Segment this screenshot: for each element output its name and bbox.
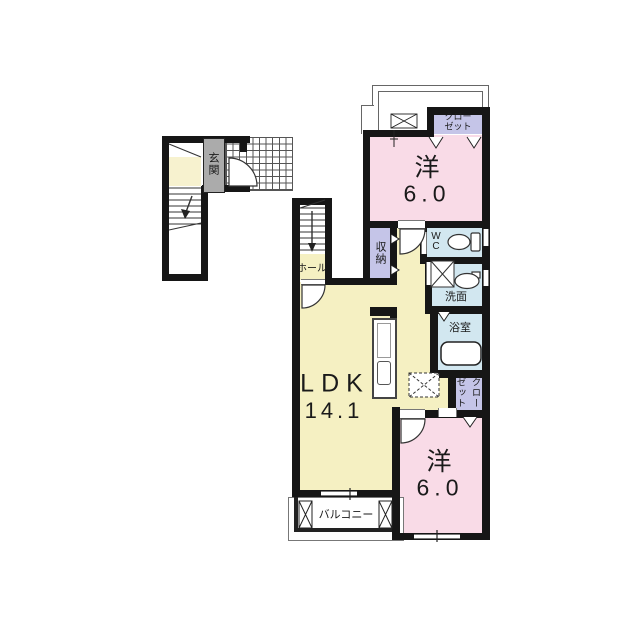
balcony-hatch-left-icon: [299, 501, 312, 528]
refrigerator-space-icon: [409, 373, 439, 397]
plan-symbols: [0, 0, 640, 640]
closet-top-line2: ゼット: [444, 122, 471, 132]
hall-label: ホール: [297, 260, 327, 275]
closet-bottom-line1: クロー: [468, 377, 482, 409]
storage-label: 収納: [372, 241, 388, 265]
sink-icon: [455, 272, 480, 289]
washing-machine-icon: [431, 261, 454, 287]
washroom-label: 洗面: [445, 288, 467, 304]
floor-plan: 洋 6.0 洋 6.0 LDK 14.1 バルコニー ホール 玄関 収納 W C…: [0, 0, 640, 640]
bedroom-bottom-size: 6.0: [417, 475, 464, 502]
bathtub-icon: [441, 342, 481, 365]
entrance-label: 玄関: [205, 152, 221, 176]
balcony-label: バルコニー: [319, 506, 374, 522]
bathroom-label: 浴室: [449, 319, 471, 335]
wc-label-line2: C: [431, 242, 440, 252]
ldk-label: LDK: [300, 370, 370, 399]
door-arc-entrance: [229, 158, 257, 186]
toilet-icon: [448, 233, 480, 251]
bedroom-top-size: 6.0: [404, 181, 451, 208]
bedroom-bottom-label: 洋: [426, 442, 451, 478]
balcony-hatch-right-icon: [379, 501, 392, 528]
door-arc-bedroom-bottom: [401, 419, 425, 443]
closet-top-label: クロー ゼット: [444, 113, 471, 132]
bedroom-top-label: 洋: [414, 148, 439, 184]
stairs-entrance: [169, 144, 201, 230]
window-icon-top: [390, 114, 417, 147]
closet-bottom-label: クロー ゼット: [453, 377, 482, 409]
wc-label: W C: [431, 232, 440, 252]
closet-bottom-line2: ゼット: [453, 377, 467, 409]
stairs-interior: [300, 200, 325, 252]
ldk-size: 14.1: [305, 398, 364, 424]
door-arc-hall: [302, 285, 325, 308]
door-arc-bedroom-top: [400, 229, 425, 254]
